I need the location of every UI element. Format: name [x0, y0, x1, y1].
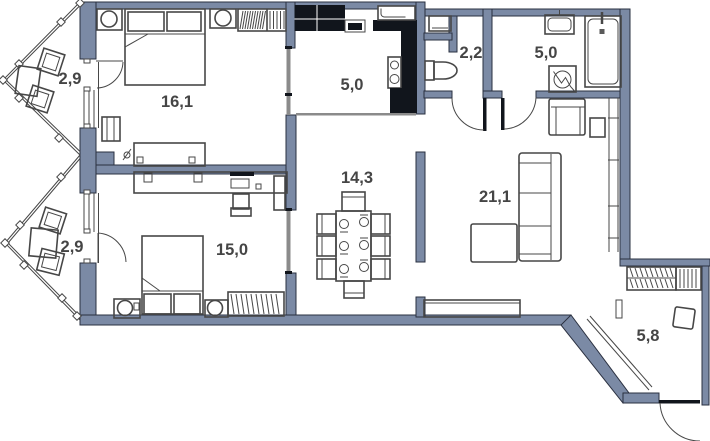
svg-text:2,9: 2,9: [61, 238, 84, 256]
svg-text:15,0: 15,0: [216, 241, 248, 259]
svg-text:21,1: 21,1: [479, 188, 511, 206]
svg-text:2,9: 2,9: [59, 70, 82, 88]
svg-text:16,1: 16,1: [161, 93, 193, 111]
svg-text:5,0: 5,0: [341, 76, 364, 94]
svg-text:14,3: 14,3: [341, 169, 373, 187]
svg-text:5,8: 5,8: [637, 327, 660, 345]
svg-text:2,2: 2,2: [460, 44, 483, 62]
svg-text:5,0: 5,0: [535, 44, 558, 62]
